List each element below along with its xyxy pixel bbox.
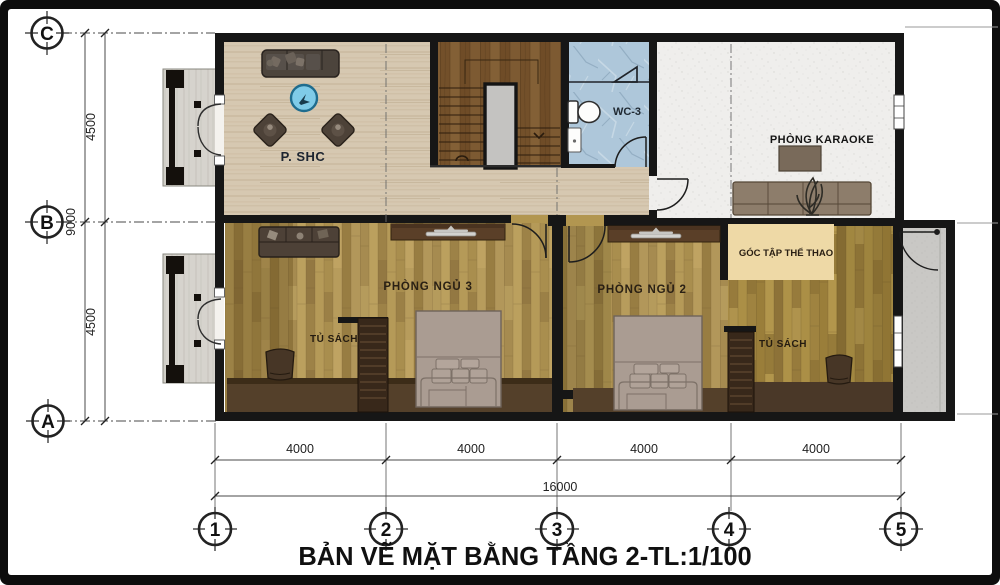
svg-text:C: C: [40, 24, 54, 45]
svg-text:PHÒNG NGỦ 3: PHÒNG NGỦ 3: [383, 280, 472, 293]
svg-text:A: A: [41, 412, 55, 433]
svg-text:4000: 4000: [630, 442, 658, 456]
svg-text:WC-3: WC-3: [613, 106, 641, 118]
svg-text:TỦ SÁCH: TỦ SÁCH: [310, 332, 358, 345]
svg-text:PHÒNG NGỦ 2: PHÒNG NGỦ 2: [597, 283, 686, 296]
svg-text:BẢN VẼ MẶT BẰNG TẦNG 2-TL:1/10: BẢN VẼ MẶT BẰNG TẦNG 2-TL:1/100: [298, 541, 751, 571]
svg-text:4000: 4000: [286, 442, 314, 456]
svg-text:4500: 4500: [84, 308, 98, 336]
svg-text:4: 4: [724, 520, 735, 541]
svg-text:4000: 4000: [457, 442, 485, 456]
svg-text:TỦ SÁCH: TỦ SÁCH: [759, 337, 807, 350]
svg-text:P. SHC: P. SHC: [281, 149, 326, 164]
svg-text:B: B: [40, 213, 54, 234]
svg-text:1: 1: [210, 520, 221, 541]
svg-text:3: 3: [552, 520, 563, 541]
svg-text:5: 5: [896, 520, 907, 541]
svg-text:16000: 16000: [543, 480, 578, 494]
svg-text:2: 2: [381, 520, 392, 541]
svg-text:4500: 4500: [84, 113, 98, 141]
svg-text:GÓC TẬP THỂ THAO: GÓC TẬP THỂ THAO: [739, 247, 833, 259]
svg-text:PHÒNG KARAOKE: PHÒNG KARAOKE: [770, 133, 874, 146]
svg-text:4000: 4000: [802, 442, 830, 456]
